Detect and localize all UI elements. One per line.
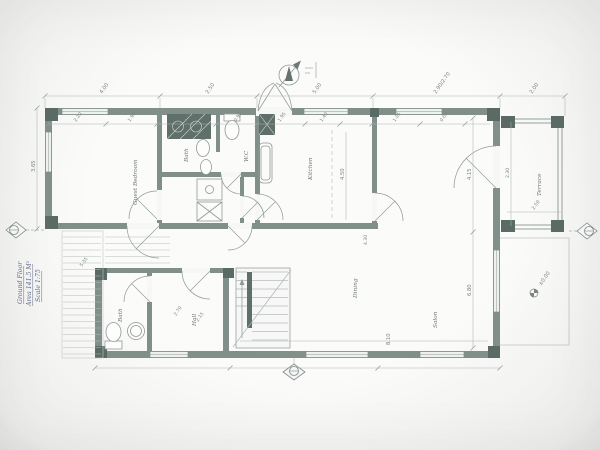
room-label-bath-2: Bath [118,308,124,323]
dim-label: 5.00 [312,82,324,95]
section-marker-right-icon [569,223,597,239]
dim-label: 4.00 [99,82,111,95]
room-label-kitchen: Kitchen [308,157,314,181]
title-block: Ground Floor Area 141.5 M² Scale 1:75 [17,260,42,307]
room-label-wc: W.C [244,150,250,162]
section-marker-left-icon [6,222,45,238]
dim-label: 2.50 [531,199,542,211]
dim-label: 2.70 [173,305,184,317]
north-arrow-icon [279,61,316,88]
hatched-cabinet [259,114,275,135]
title-area-label: Area 141.5 M² [26,260,33,307]
dim-label: 4.50 [340,168,346,180]
dim-label: 8.10 [386,333,392,345]
toilet-icon-2 [105,323,122,350]
title-scale-label: Scale 1:75 [35,269,42,302]
sink-icon [197,140,212,175]
bathtub-icon [259,143,272,183]
level-label: ±0.00 [538,271,552,287]
room-label-guest-bedroom: Guest Bedroom [133,159,139,205]
dim-label: 4.30 [363,235,369,245]
dim-label: 2.90/2.70 [433,71,452,95]
dim-label: 3.65 [31,160,37,172]
section-marker-bottom-icon [283,364,305,380]
room-label-terrace: Terrace [537,173,543,196]
staircase [233,268,291,348]
room-label-bath: Bath [184,148,190,163]
dim-label: 2.00 [529,82,541,95]
dim-label: 5.35 [79,256,90,268]
room-label-hall: Hall [192,314,198,327]
shower-icon [197,179,222,221]
level-marker: ±0.00 [530,271,552,297]
floor-plan-drawing: 4.00 2.50 5.00 2.90/2.70 2.00 2.20 1.90 … [0,0,600,450]
room-label-dining: Dining [353,278,359,299]
room-label-salon: Salon [433,311,439,328]
dim-label: 6.80 [467,284,473,296]
scanned-floor-plan-photo: 4.00 2.50 5.00 2.90/2.70 2.00 2.20 1.90 … [0,0,600,450]
round-sink-icon [128,323,145,340]
dim-label: 2.30 [505,168,511,178]
dim-label: 4.15 [467,168,473,180]
dim-label: 2.50 [205,82,217,95]
title-floor-label: Ground Floor [17,261,24,304]
